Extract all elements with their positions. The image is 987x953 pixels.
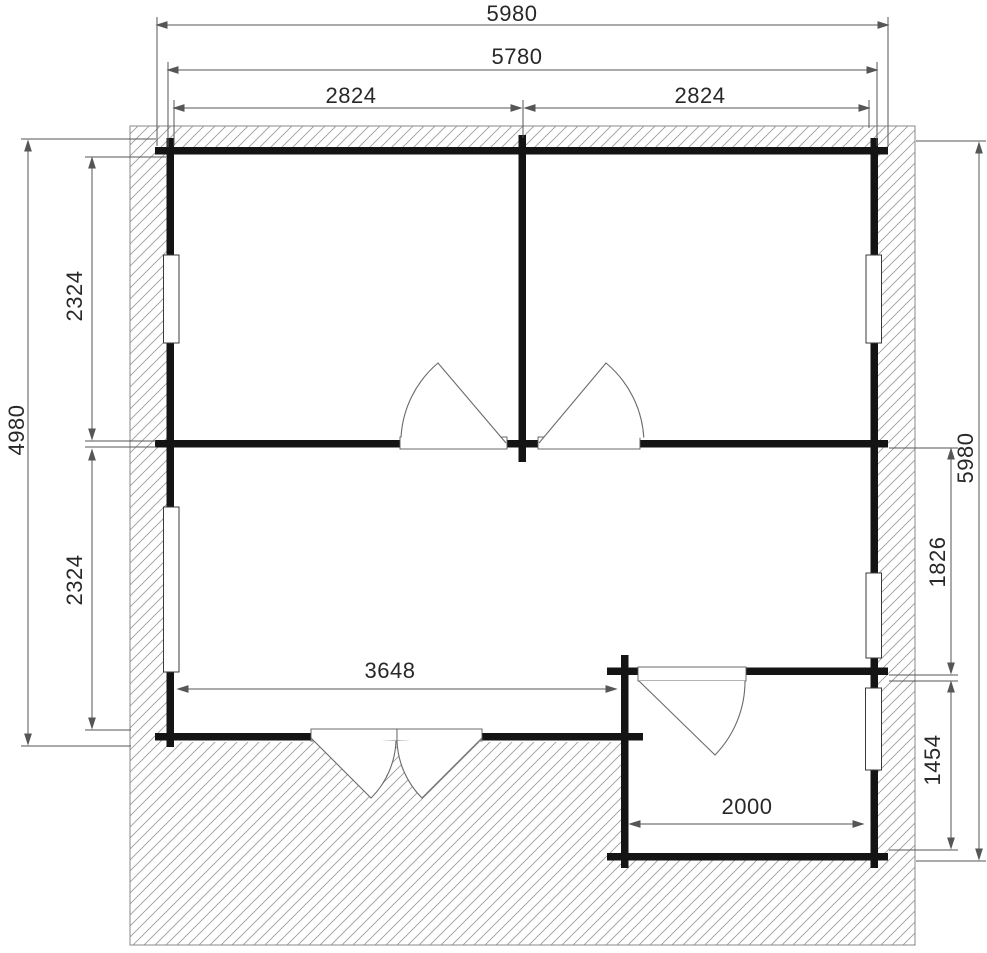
window-left-upper <box>164 255 180 343</box>
window-right-upper <box>866 255 882 343</box>
dim-label-annex-depth: 1454 <box>922 735 944 786</box>
door-swing-fill-room-right <box>539 363 644 443</box>
window-right-middle <box>866 573 882 658</box>
dim-label-right-upper-seg: 1826 <box>927 537 949 588</box>
dim-label-room-right-width: 2824 <box>675 85 726 107</box>
floor-plan-drawing <box>0 0 987 953</box>
wall-annex-top-seg-left <box>607 668 638 676</box>
wall-middle-seg-right <box>640 440 888 448</box>
dim-label-room-left-width: 2824 <box>326 85 377 107</box>
hatch-terrace-bottom <box>624 858 915 945</box>
door-threshold-annex <box>638 667 746 681</box>
wall-annex-top-seg-right <box>746 668 888 676</box>
wall-annex-bottom <box>607 853 888 861</box>
wall-middle-seg-left <box>155 440 400 448</box>
wall-bottom-seg-right <box>482 733 643 741</box>
dim-label-top-wall-outer: 5780 <box>492 46 543 68</box>
dim-label-room-upper-depth: 2324 <box>64 271 86 322</box>
door-swing-fill-room-left <box>401 363 506 443</box>
dim-label-right-overall: 5980 <box>955 433 977 484</box>
wall-bottom-seg-left <box>155 733 311 741</box>
window-left-lower <box>164 507 180 672</box>
dim-label-annex-width: 2000 <box>722 796 773 818</box>
wall-annex-left <box>621 655 629 868</box>
hatch-band-right <box>878 150 915 858</box>
window-annex-right <box>866 688 882 770</box>
wall-middle-seg-center <box>507 440 538 448</box>
floor-plan-canvas: 5980 5780 2824 2824 4980 2324 2324 5980 … <box>0 0 987 953</box>
door-swing-fill-annex <box>639 681 745 755</box>
dim-label-bottom-main-width: 3648 <box>365 660 416 682</box>
dim-label-room-lower-depth: 2324 <box>64 555 86 606</box>
dim-label-top-overall: 5980 <box>487 3 538 25</box>
dim-label-left-overall: 4980 <box>6 405 28 456</box>
doors <box>311 363 746 798</box>
wall-center-partition <box>519 135 527 462</box>
